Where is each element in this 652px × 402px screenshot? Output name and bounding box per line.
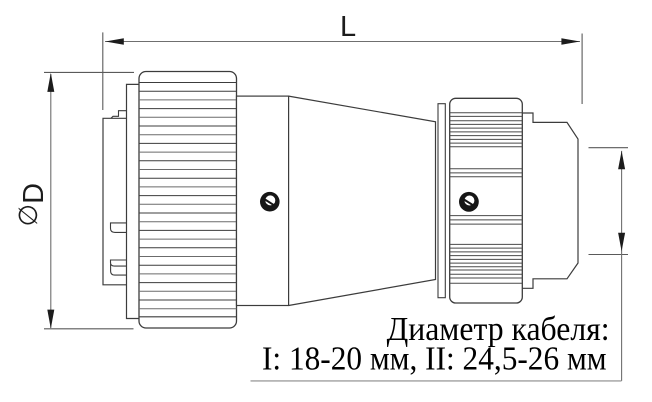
svg-text:I: 18-20 мм, II: 24,5-26 мм: I: 18-20 мм, II: 24,5-26 мм: [262, 341, 607, 378]
svg-text:L: L: [340, 11, 356, 43]
